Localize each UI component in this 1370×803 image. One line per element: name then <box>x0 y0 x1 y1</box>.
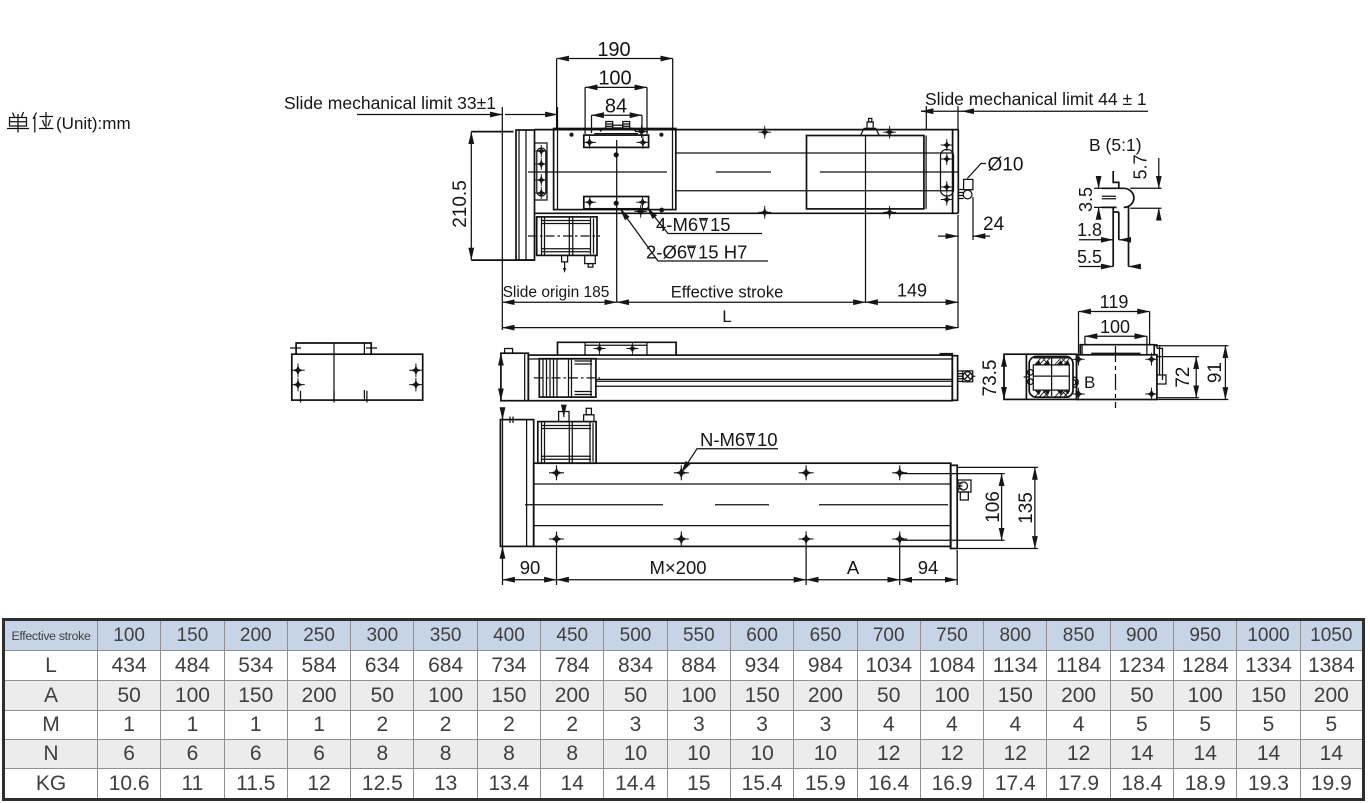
svg-text:94: 94 <box>918 557 939 578</box>
svg-text:210.5: 210.5 <box>450 180 471 228</box>
svg-text:84: 84 <box>605 96 627 118</box>
svg-text:149: 149 <box>897 281 927 301</box>
svg-text:4-M6: 4-M6 <box>656 214 698 235</box>
svg-text:Effective stroke: Effective stroke <box>671 284 784 302</box>
svg-text:L: L <box>722 307 731 326</box>
svg-text:91: 91 <box>1205 362 1226 383</box>
svg-text:190: 190 <box>597 39 630 61</box>
svg-text:100: 100 <box>598 68 631 90</box>
svg-text:B: B <box>1084 373 1095 392</box>
svg-text:B (5:1): B (5:1) <box>1089 135 1142 155</box>
svg-text:119: 119 <box>1100 292 1129 312</box>
svg-text:73.5: 73.5 <box>980 360 1001 397</box>
svg-text:1.8: 1.8 <box>1077 220 1102 240</box>
svg-text:Ø10: Ø10 <box>988 155 1024 176</box>
svg-text:15 H7: 15 H7 <box>698 242 747 263</box>
svg-text:Slide mechanical limit 33±1: Slide mechanical limit 33±1 <box>284 93 496 113</box>
svg-text:10: 10 <box>757 429 778 450</box>
svg-text:90: 90 <box>520 557 541 578</box>
svg-text:24: 24 <box>983 214 1005 235</box>
svg-text:3.5: 3.5 <box>1076 187 1096 212</box>
svg-text:106: 106 <box>983 491 1004 523</box>
svg-text:A: A <box>847 557 860 578</box>
svg-text:N-M6: N-M6 <box>700 429 745 450</box>
svg-text:135: 135 <box>1016 492 1037 524</box>
svg-text:2-Ø6: 2-Ø6 <box>646 242 687 263</box>
svg-text:M×200: M×200 <box>649 557 706 578</box>
svg-text:(Unit):mm: (Unit):mm <box>56 114 131 133</box>
svg-text:72: 72 <box>1173 367 1194 388</box>
svg-text:5.7: 5.7 <box>1131 154 1151 179</box>
svg-text:100: 100 <box>1100 317 1130 337</box>
svg-text:5.5: 5.5 <box>1077 247 1102 267</box>
svg-text:15: 15 <box>710 214 731 235</box>
svg-text:Slide origin 185: Slide origin 185 <box>503 284 610 301</box>
